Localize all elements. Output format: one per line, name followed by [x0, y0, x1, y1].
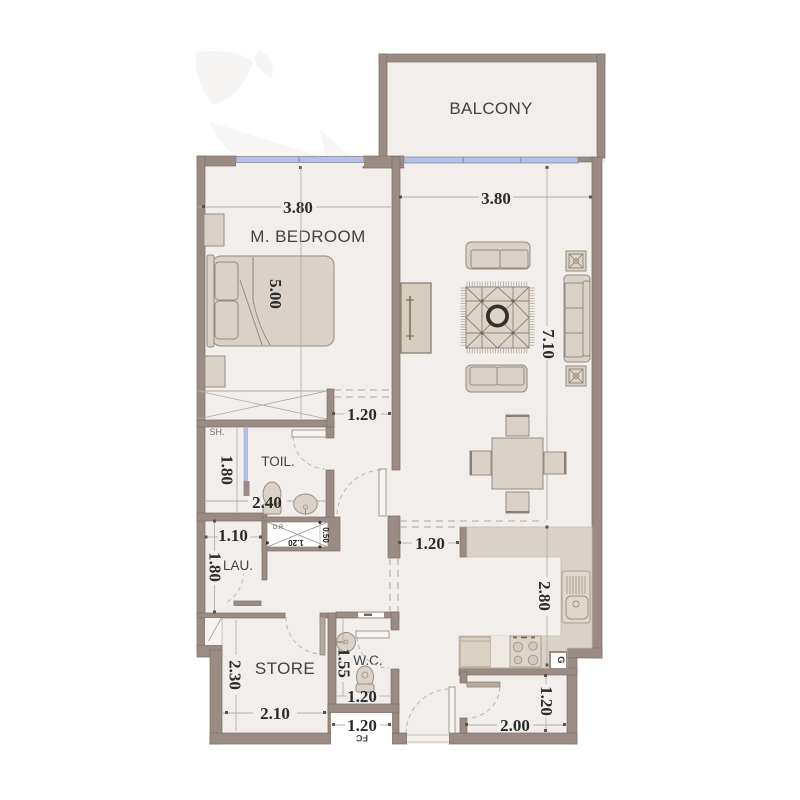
svg-text:5.00: 5.00 [266, 279, 285, 309]
svg-text:1.20: 1.20 [347, 405, 377, 424]
svg-text:2.40: 2.40 [252, 493, 282, 512]
svg-text:1.80: 1.80 [206, 552, 225, 582]
svg-text:TOIL.: TOIL. [261, 454, 295, 469]
svg-text:D.R: D.R [273, 525, 284, 531]
svg-text:1.20: 1.20 [347, 716, 377, 735]
svg-text:1.80: 1.80 [218, 455, 237, 485]
svg-text:M. BEDROOM: M. BEDROOM [250, 227, 365, 246]
svg-text:1.55: 1.55 [335, 648, 354, 678]
svg-text:1.10: 1.10 [218, 526, 248, 545]
svg-text:3.80: 3.80 [283, 198, 313, 217]
svg-text:1.20: 1.20 [288, 538, 304, 547]
svg-text:SH.: SH. [209, 427, 224, 437]
svg-text:2.80: 2.80 [535, 581, 554, 611]
svg-text:3.80: 3.80 [481, 189, 511, 208]
svg-text:2.30: 2.30 [226, 660, 245, 690]
svg-text:1.20: 1.20 [415, 534, 445, 553]
svg-text:7.10: 7.10 [539, 329, 558, 359]
svg-text:1.20: 1.20 [347, 687, 377, 706]
svg-text:1.20: 1.20 [537, 686, 556, 716]
svg-text:STORE: STORE [255, 659, 315, 678]
svg-text:G: G [555, 656, 566, 663]
svg-text:2.00: 2.00 [500, 716, 530, 735]
svg-text:LAU.: LAU. [223, 558, 253, 573]
svg-text:BALCONY: BALCONY [449, 99, 532, 118]
svg-text:FC: FC [356, 733, 368, 743]
svg-text:2.10: 2.10 [260, 704, 290, 723]
svg-text:0.50: 0.50 [321, 527, 330, 543]
